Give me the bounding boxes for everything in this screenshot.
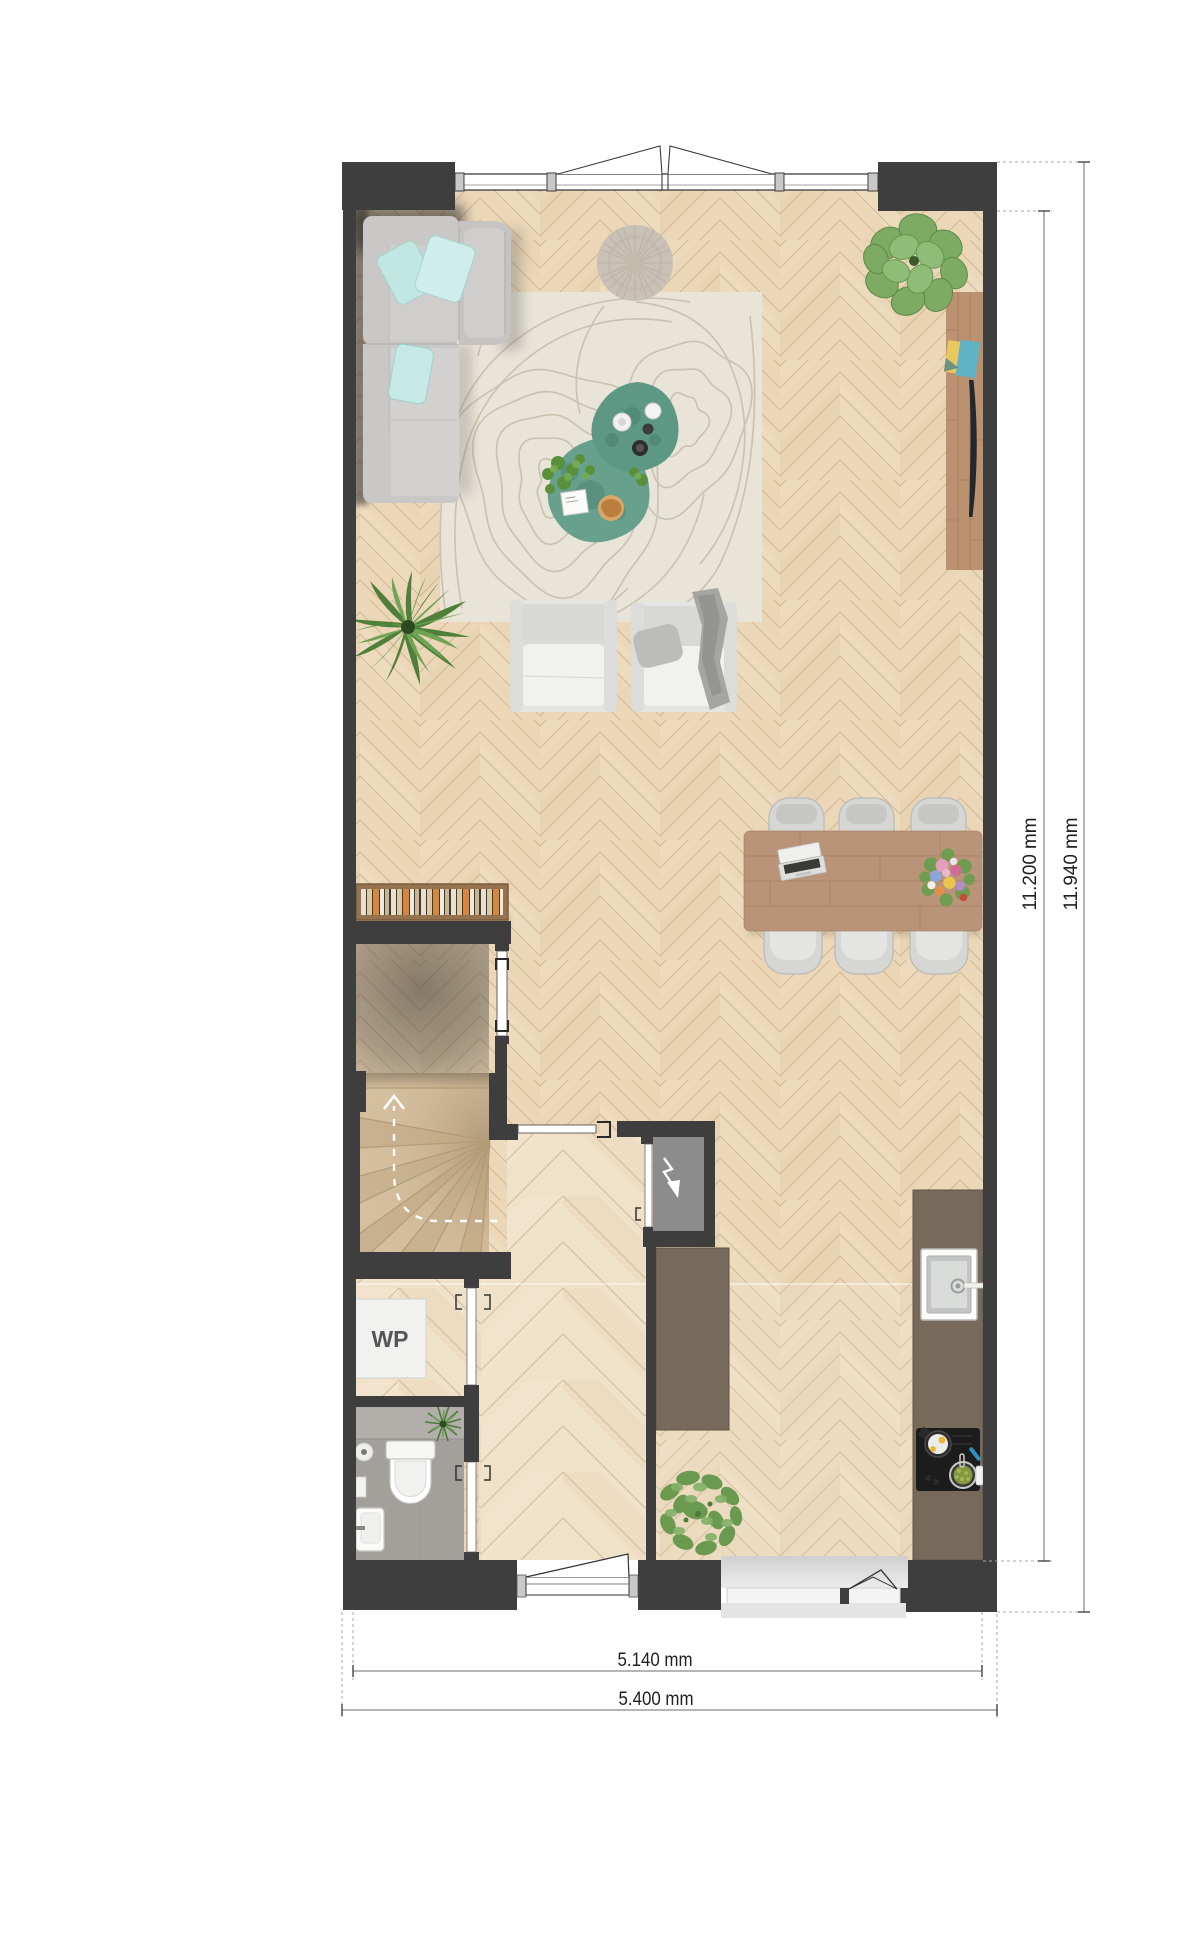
svg-text:11.200 mm: 11.200 mm — [1019, 818, 1041, 911]
svg-text:11.940 mm: 11.940 mm — [1060, 818, 1082, 911]
svg-text:5.140 mm: 5.140 mm — [618, 1649, 693, 1671]
svg-text:WP: WP — [371, 1326, 408, 1352]
svg-text:5.400 mm: 5.400 mm — [619, 1688, 694, 1710]
